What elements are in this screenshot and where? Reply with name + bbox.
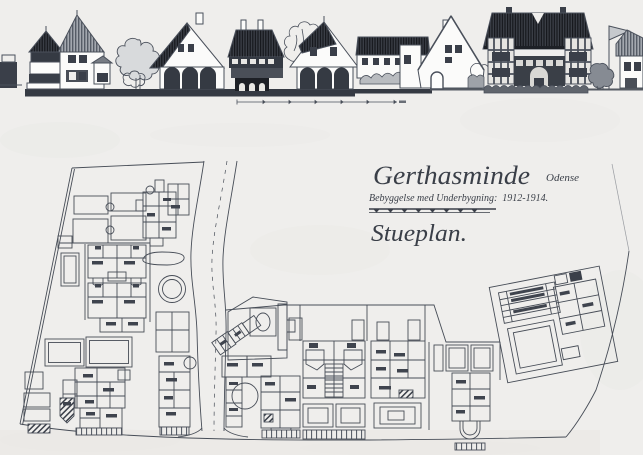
svg-text:Bebyggelse med Underbygning:: Bebyggelse med Underbygning: 1912-1914. bbox=[369, 193, 548, 204]
svg-text:Stueplan.: Stueplan. bbox=[371, 221, 467, 247]
svg-text:Odense: Odense bbox=[546, 172, 579, 184]
svg-text:Gerthasminde: Gerthasminde bbox=[373, 161, 530, 190]
